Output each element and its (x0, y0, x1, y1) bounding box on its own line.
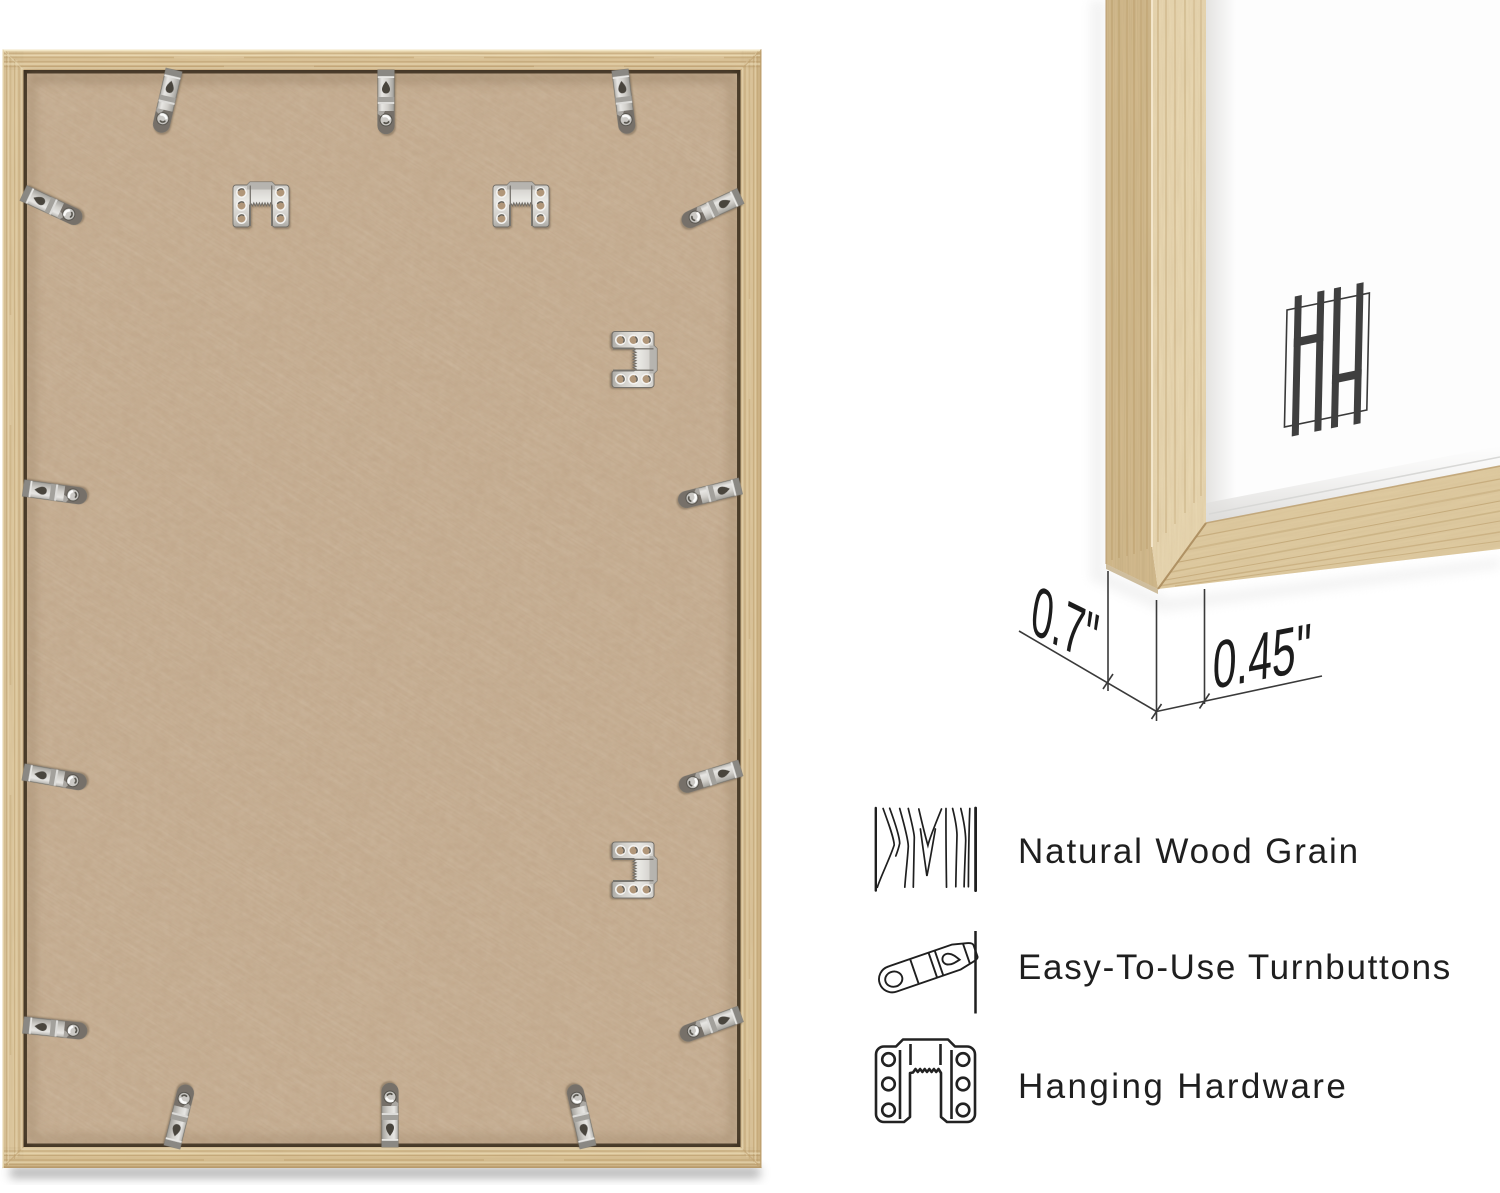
svg-text:Easy-To-Use Turnbuttons: Easy-To-Use Turnbuttons (1018, 948, 1452, 987)
svg-text:Natural Wood Grain: Natural Wood Grain (1018, 832, 1360, 871)
svg-text:Hanging Hardware: Hanging Hardware (1018, 1067, 1348, 1106)
